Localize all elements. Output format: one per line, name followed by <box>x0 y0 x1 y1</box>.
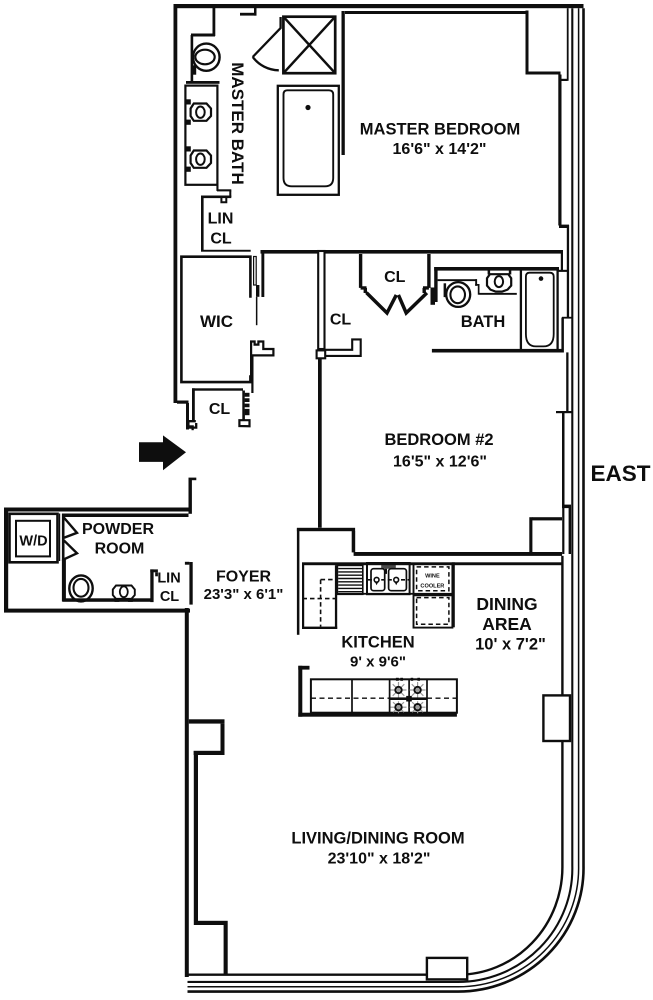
svg-text:BEDROOM #2: BEDROOM #2 <box>384 431 493 449</box>
svg-text:BATH: BATH <box>461 313 506 331</box>
svg-text:CL: CL <box>210 230 232 247</box>
svg-text:10' x 7'2": 10' x 7'2" <box>475 636 546 654</box>
svg-text:EAST: EAST <box>590 461 650 486</box>
svg-text:FOYER: FOYER <box>216 569 272 586</box>
svg-text:LIVING/DINING ROOM: LIVING/DINING ROOM <box>291 830 464 848</box>
svg-text:W/D: W/D <box>19 534 47 550</box>
svg-text:ROOM: ROOM <box>95 541 145 558</box>
svg-text:LIN: LIN <box>157 571 180 587</box>
svg-text:CL: CL <box>330 312 352 329</box>
svg-text:16'5" x 12'6": 16'5" x 12'6" <box>393 454 487 471</box>
svg-text:AREA: AREA <box>482 614 532 634</box>
svg-text:DINING: DINING <box>476 594 537 614</box>
svg-text:MASTER BATH: MASTER BATH <box>228 62 247 184</box>
svg-text:KITCHEN: KITCHEN <box>341 634 414 652</box>
svg-text:LIN: LIN <box>208 210 234 227</box>
svg-text:23'3" x 6'1": 23'3" x 6'1" <box>204 586 284 603</box>
svg-text:WINE: WINE <box>425 573 440 579</box>
svg-text:CL: CL <box>384 269 406 286</box>
svg-text:9' x 9'6": 9' x 9'6" <box>350 654 406 671</box>
svg-text:WIC: WIC <box>200 312 233 331</box>
svg-text:CL: CL <box>160 589 179 605</box>
svg-text:COOLER: COOLER <box>420 584 444 590</box>
svg-text:16'6" x 14'2": 16'6" x 14'2" <box>393 141 487 158</box>
svg-text:23'10" x 18'2": 23'10" x 18'2" <box>328 851 431 868</box>
svg-text:MASTER BEDROOM: MASTER BEDROOM <box>360 121 520 139</box>
svg-text:CL: CL <box>209 401 231 418</box>
svg-text:POWDER: POWDER <box>82 521 154 538</box>
